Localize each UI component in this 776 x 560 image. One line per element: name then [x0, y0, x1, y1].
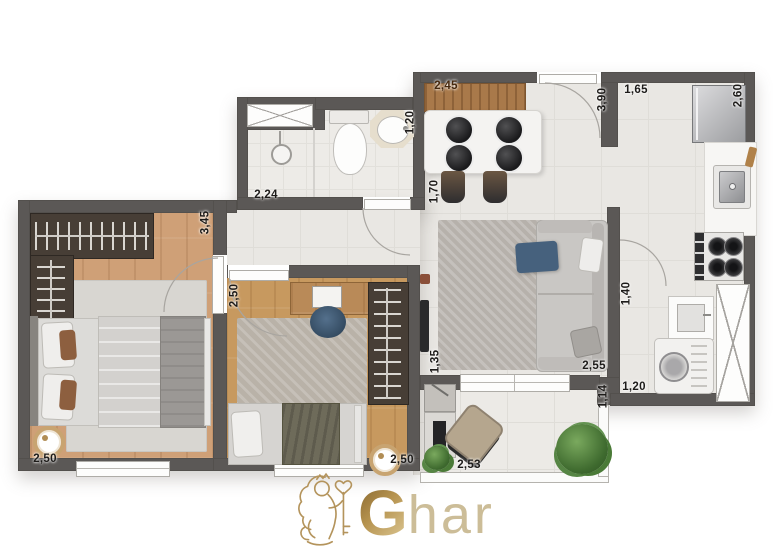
double-bed	[30, 316, 179, 426]
dim-living-width: 2,55	[577, 360, 611, 373]
dim-bedroom2-bottom: 2,50	[385, 454, 419, 467]
master-window	[76, 461, 170, 477]
dim-kitchen-length: 3,90	[597, 83, 610, 117]
dim-kitchen-entry: 1,65	[619, 84, 653, 97]
dim-service-width: 1,20	[617, 381, 651, 394]
master-door-leaf	[212, 256, 224, 314]
bedroom2-rug	[237, 318, 367, 406]
wall	[607, 207, 620, 379]
dim-fridge-wall: 2,60	[733, 79, 746, 113]
dining-table	[424, 110, 542, 174]
shower-divider	[313, 128, 315, 197]
dim-kitchen-width: 1,40	[621, 277, 634, 311]
wall	[566, 375, 600, 390]
washing-machine	[654, 338, 714, 394]
plate	[444, 143, 474, 173]
shower-head-icon	[279, 131, 281, 145]
logo-text: har	[408, 478, 495, 552]
wall	[410, 197, 425, 210]
plate	[494, 115, 524, 145]
dim-bath-width: 1,20	[405, 106, 418, 140]
plant	[424, 446, 450, 470]
decor-item	[420, 274, 430, 284]
plant	[556, 424, 608, 474]
lion-with-key-icon	[288, 470, 362, 552]
single-bed	[228, 403, 365, 463]
living-balcony-door	[460, 374, 570, 392]
dining-chair	[441, 171, 465, 203]
dim-balcony-depth: 1,14	[598, 380, 611, 414]
plate	[444, 115, 474, 145]
dim-master-length: 3,45	[200, 206, 213, 240]
dining-chair	[483, 171, 507, 203]
dim-bedroom2-width: 2,50	[229, 279, 242, 313]
dim-dining-depth: 1,70	[429, 175, 442, 209]
dim-living-depth: 1,35	[430, 345, 443, 379]
monitor	[312, 286, 342, 308]
wall	[213, 200, 227, 471]
floor-plan-image: 2,45 3,90 1,65 2,60 1,20 2,24 3,45 1,70 …	[0, 0, 776, 560]
kitchen-counter	[704, 142, 757, 236]
toilet-tank	[329, 110, 369, 124]
plate	[494, 143, 524, 173]
tv-panel	[420, 300, 429, 352]
toilet	[333, 123, 367, 175]
logo-initial: G	[358, 474, 408, 552]
balcony-shelf	[424, 384, 456, 412]
shower-head-icon	[271, 144, 292, 165]
master-wardrobe	[30, 213, 154, 259]
dim-shower-width: 2,24	[249, 189, 283, 202]
bedroom2-wardrobe	[368, 282, 409, 405]
stove	[694, 232, 744, 281]
service-window	[716, 284, 750, 402]
desk-chair	[310, 306, 346, 338]
wall	[315, 97, 413, 110]
bathroom-door-leaf	[364, 199, 411, 210]
bathroom-window	[247, 104, 313, 127]
ghar-logo: G har	[288, 470, 495, 552]
dim-dining-width: 2,45	[429, 80, 463, 93]
entry-door-leaf	[539, 74, 597, 84]
wall	[18, 200, 30, 471]
blue-cushion	[515, 241, 559, 274]
dim-master-width: 2,50	[28, 453, 62, 466]
laundry-tub	[668, 296, 714, 340]
